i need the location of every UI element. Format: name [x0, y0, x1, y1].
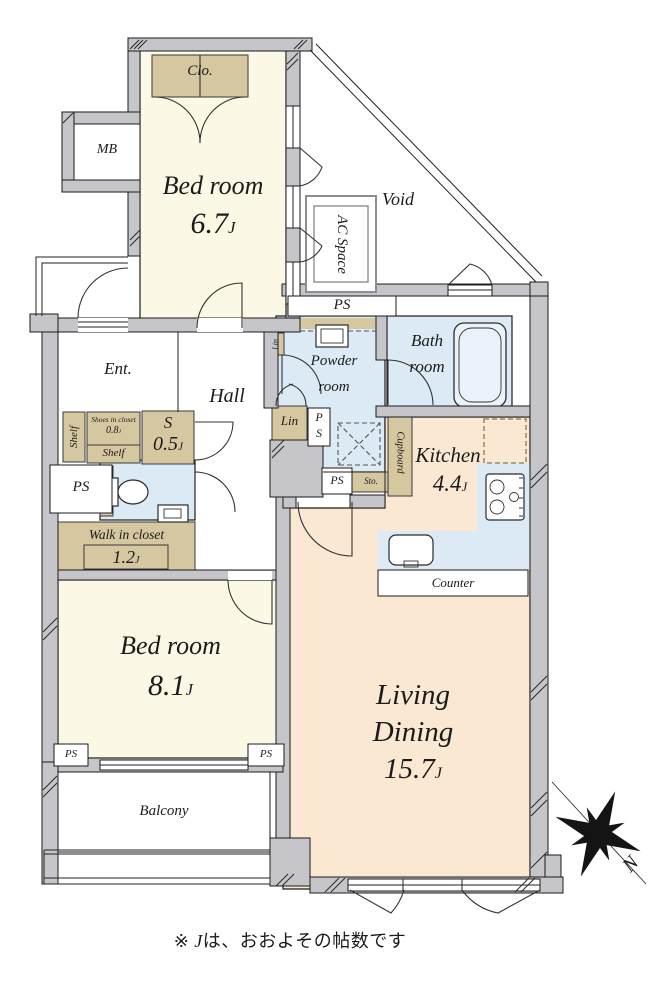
ps-vertical-p: P [308, 411, 330, 424]
void-label: Void [358, 190, 438, 209]
living-window [348, 879, 540, 891]
closet-label: Clo. [152, 64, 248, 80]
entrance-door-arc [78, 268, 128, 318]
balcony-railing [44, 850, 270, 884]
counter-label: Counter [378, 576, 528, 590]
footnote: ※ Jは、おおよその帖数です [140, 932, 440, 951]
ps-bottom-right-label: PS [248, 749, 284, 761]
ps-vertical-s: S [308, 427, 330, 440]
shaft-box [270, 440, 323, 497]
living-label-2: Dining [293, 717, 533, 747]
ps-bottom-left-label: PS [54, 749, 88, 761]
storage-s-door-arc [195, 422, 233, 460]
bedroom1-area: 6.7J [140, 208, 286, 240]
ps-shaft-label: PS [322, 474, 352, 487]
bedroom2-label: Bed room [58, 632, 283, 659]
shoes-closet-label: Shoes in closet [86, 416, 141, 424]
shelf-label: Shelf [87, 448, 140, 460]
kitchen-sink-icon [389, 535, 433, 565]
linen-small-label-wrap: Lin [245, 333, 305, 355]
bath-window-swing [448, 264, 492, 285]
walk-in-closet-label: Walk in closet [58, 528, 195, 542]
hall-label: Hall [186, 386, 268, 407]
linen-small-label: Lin [270, 339, 279, 350]
bedroom2-window [100, 760, 248, 770]
hand-sink-icon [158, 505, 188, 522]
ac-space-label-wrap: AC Space [281, 214, 401, 274]
meter-box-label: MB [74, 143, 140, 158]
ac-space-label: AC Space [332, 215, 349, 274]
kitchen-area: 4.4J [402, 472, 498, 496]
kitchen-label: Kitchen [400, 444, 496, 466]
entrance-label: Ent. [62, 360, 174, 378]
bedroom1-label: Bed room [140, 172, 286, 199]
living-label-1: Living [293, 680, 533, 710]
shelf-vertical-label: Shelf [68, 426, 80, 448]
powder-room-label-1: Powder [283, 354, 385, 370]
bath-room-label-2: room [390, 358, 464, 376]
toilet-door-arc [195, 472, 235, 512]
powder-room-label-2: room [283, 380, 385, 396]
toilet-icon [118, 480, 148, 504]
shoes-closet-area: 0.8J [86, 426, 141, 437]
linen-label: Lin [272, 414, 307, 428]
bath-room-label-1: Bath [390, 332, 464, 350]
living-area: 15.7J [293, 754, 533, 784]
storage-s-area: 0.5J [142, 434, 194, 455]
storage-sto-label: Sto. [352, 477, 390, 486]
storage-s-label: S [142, 414, 194, 432]
walk-in-closet-area: 1.2J [84, 548, 168, 567]
balcony-label: Balcony [58, 804, 270, 820]
bedroom1-windows [286, 106, 300, 304]
ps-top-label: PS [288, 298, 396, 314]
bedroom1-casement1 [300, 148, 322, 186]
floor-plan: Clo. MB Bed room 6.7J Void AC Space PS E… [0, 0, 664, 984]
bedroom2-area: 8.1J [58, 670, 283, 702]
bath-window [448, 285, 492, 296]
ps-left-label: PS [50, 480, 112, 496]
